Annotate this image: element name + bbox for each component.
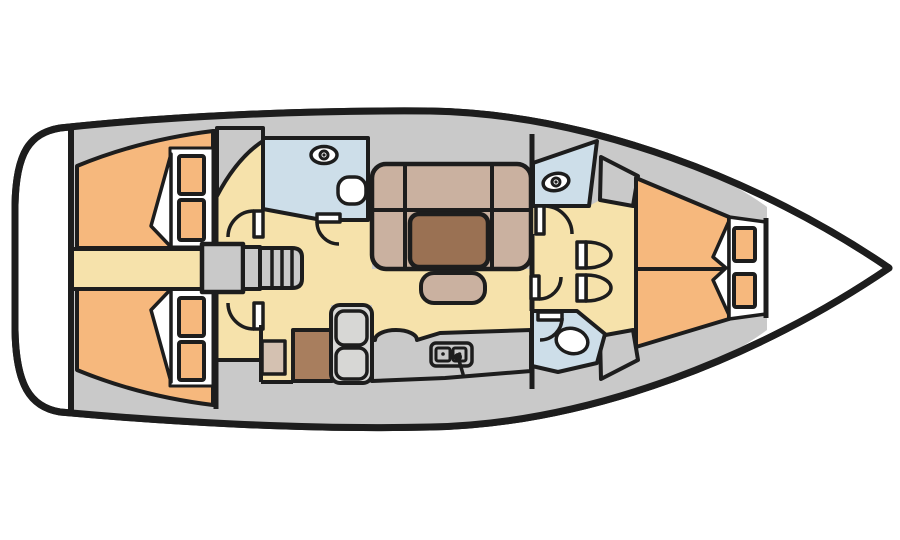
step-landing <box>243 247 260 289</box>
door-leaf <box>254 211 263 237</box>
boat-floor-plan <box>0 0 900 540</box>
drain-dot <box>441 352 445 356</box>
pillow <box>179 342 204 380</box>
door-leaf <box>531 276 539 299</box>
door-leaf <box>538 312 562 320</box>
saloon-table <box>410 214 488 267</box>
pillow <box>734 228 755 261</box>
pillow <box>179 200 204 240</box>
companionway <box>202 244 302 292</box>
sink-icon <box>311 147 337 164</box>
chart-table <box>293 330 332 381</box>
wardrobe-door-leaf <box>577 275 586 301</box>
wardrobe-door-leaf <box>577 242 586 268</box>
pillow <box>179 156 204 194</box>
pillow <box>734 274 755 307</box>
saloon-bench <box>421 273 485 303</box>
door-leaf <box>536 206 544 234</box>
pillow <box>179 298 204 336</box>
door-leaf <box>317 214 340 222</box>
engine-box <box>202 244 243 292</box>
nav-seat <box>262 341 285 374</box>
floor-plan-svg <box>0 0 900 540</box>
toilet-icon <box>338 177 366 204</box>
